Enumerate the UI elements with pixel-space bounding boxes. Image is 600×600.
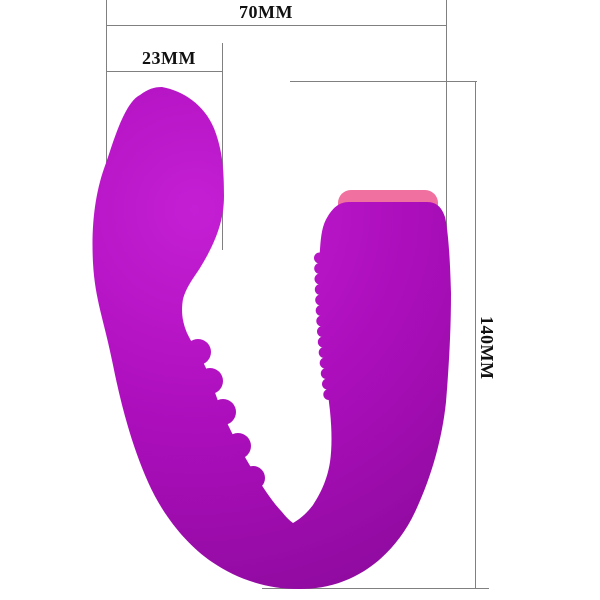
product-photo [93, 87, 451, 589]
product-body [93, 87, 451, 589]
width-head-label: 23MM [129, 48, 209, 69]
height-total-label: 140MM [476, 316, 497, 379]
diagram-canvas [0, 0, 600, 600]
width-total-label: 70MM [226, 2, 306, 23]
product-dimension-diagram: 70MM 23MM 140MM [0, 0, 600, 600]
